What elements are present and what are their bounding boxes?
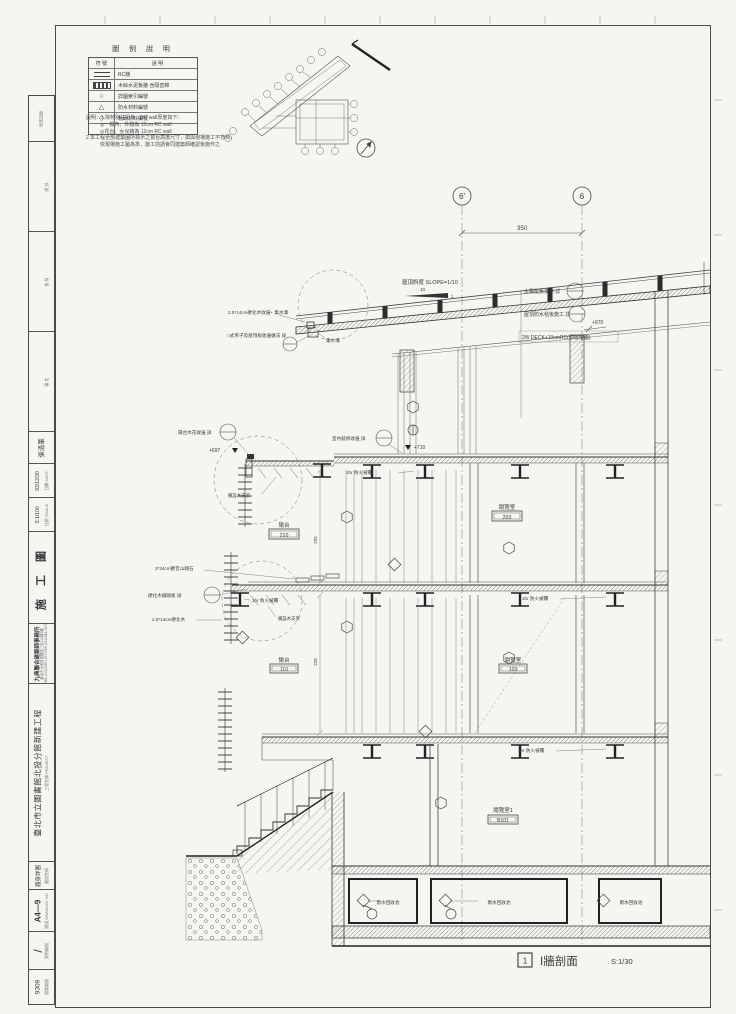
room-tags-1f: 陽台 110 閱覽室 103: [270, 656, 527, 673]
right-wall: [655, 291, 668, 866]
roof-beam: [400, 350, 414, 392]
tank-label-3: 雨水回收池: [620, 899, 643, 906]
fireproof-note-mid: 1hr 防火被覆: [252, 597, 279, 604]
floor2-elevation: +710: [414, 445, 425, 451]
hanger-note: □式吊子及屋頂板收邊做法 詳: [227, 332, 287, 339]
vertical-dimensions: 225 225: [313, 467, 323, 736]
roof-beam: [570, 335, 584, 383]
floor-mid: [222, 552, 668, 644]
detail-circle-balcony2: [214, 436, 302, 524]
room-name: 閱覽室: [499, 503, 516, 511]
hardwood-plate-note: 硬化木鋪踏板 詳: [148, 592, 182, 599]
roof-deck-note: 2W DECK+10cmRC(斜坡樓面): [522, 334, 591, 341]
room-number: B101: [497, 818, 509, 824]
room-number: 210: [280, 533, 289, 539]
room-number: 103: [509, 667, 518, 673]
slope-run: 10: [420, 287, 426, 292]
drawing-caption: 1 I牆剖面 S:1/30: [518, 953, 633, 968]
dim-225-b: 225: [313, 658, 318, 666]
wood-support-note-2f: 橫設木支架: [228, 492, 251, 499]
grid-dimension: 350: [517, 226, 528, 232]
roof-felt-note: 屋頂防水毯後施工 詳: [524, 311, 570, 318]
room-tags-2f: 陽台 210 閱覽室 203: [269, 503, 522, 539]
basement: 雨水回收池 雨水回收池 雨水回收池: [332, 744, 710, 946]
story1-mullions: [346, 595, 584, 733]
fireproof-note-2f: 1hr 防火被覆: [346, 469, 373, 476]
wall-section-drawing: 6' 6 350: [0, 0, 736, 1014]
story2-mullions: [346, 463, 584, 583]
room-name: 閱覽室1: [493, 806, 513, 814]
solar-support-note: 太陽能板支架 詳: [524, 288, 560, 295]
floor-1f: 1hr 防火被覆: [262, 734, 668, 790]
tank-label-2: 雨水回收池: [488, 899, 511, 906]
roof-elevation: +970: [592, 320, 603, 326]
room-name: 陽台: [278, 656, 290, 664]
stone-tread-note: 3*24cm觀音山踏石: [155, 565, 194, 572]
roof-slope-note: 屋頂斜度 SLOPE=1/10: [402, 278, 458, 286]
drawing-sheet: 修改記錄 設 計 查 核 審 定 張清華 日期 DATE 93/12/30 比例…: [0, 0, 736, 1014]
caption-number: 1: [523, 956, 528, 966]
room-tag-basement: 閱覽室1 B101: [488, 806, 518, 824]
grid-bubble-6: 6: [580, 192, 585, 201]
gutter-label: 集水溝: [326, 337, 340, 344]
dim-225-a: 225: [313, 536, 318, 544]
room-name: 陽台: [278, 521, 290, 529]
caption-title: I牆剖面: [540, 954, 578, 968]
fireproof-note-mid-right: 1hr 防火被覆: [522, 595, 549, 602]
lower-louvers: [218, 688, 232, 772]
balcony-edge-note: 陽台木花收邊 詳: [178, 429, 212, 436]
ground-earth: [186, 792, 333, 940]
hardwood-note: 2.5*14cm硬化木: [152, 616, 186, 623]
wood-support-note-mid: 橫設木支架: [278, 615, 301, 622]
floor-mid-annotations: 3*24cm觀音山踏石 硬化木鋪踏板 詳 2.5*14cm硬化木 1hr 防火被…: [148, 565, 606, 623]
tank-label-1: 雨水回收池: [377, 899, 400, 906]
floor-2f: [214, 436, 668, 527]
room-number: 110: [280, 667, 288, 673]
grid-bubble-6p: 6': [459, 192, 465, 201]
balcony-elevation: +697: [209, 448, 220, 454]
fireproof-note-1f: 1hr 防火被覆: [518, 747, 545, 754]
roof-structure: [296, 262, 710, 418]
caption-scale: S:1/30: [611, 957, 633, 966]
interior-finish-note: 室內裝修收邊 詳: [332, 435, 366, 442]
room-number: 203: [503, 515, 512, 521]
